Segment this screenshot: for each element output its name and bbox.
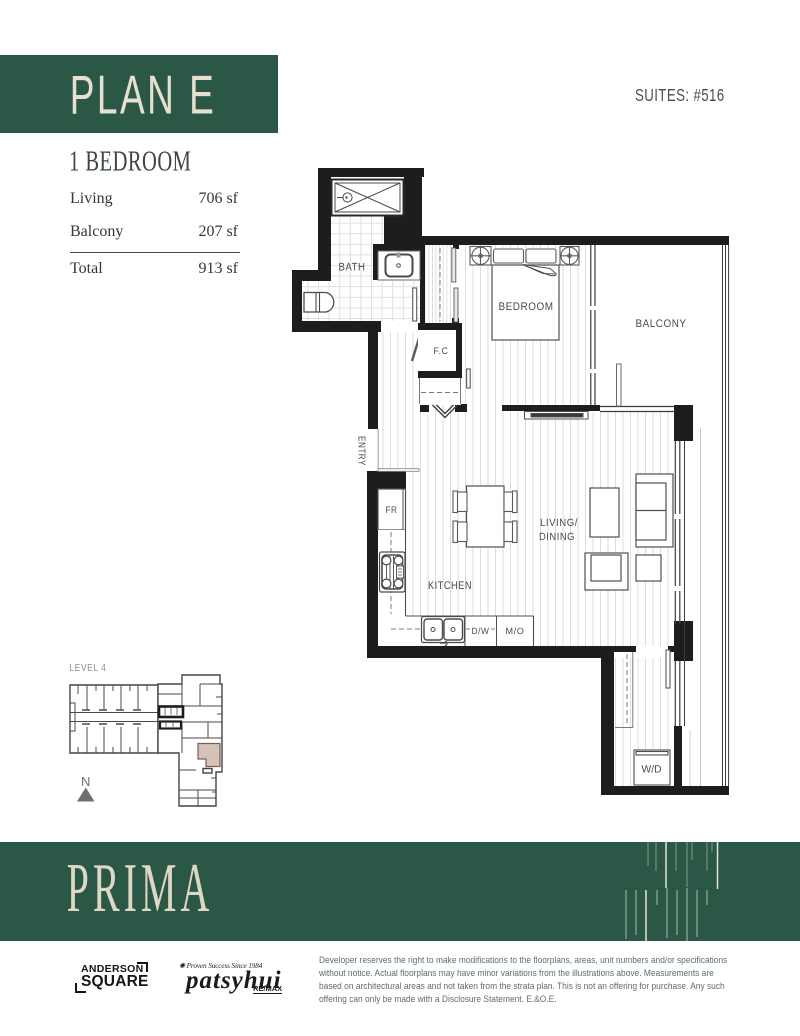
- svg-text:FR: FR: [386, 505, 398, 516]
- svg-text:ENTRY: ENTRY: [356, 436, 367, 466]
- svg-text:BALCONY: BALCONY: [636, 318, 687, 330]
- svg-text:N: N: [81, 774, 90, 789]
- svg-text:D/W: D/W: [472, 626, 490, 636]
- svg-text:LIVING/: LIVING/: [540, 517, 578, 529]
- svg-text:BEDROOM: BEDROOM: [499, 301, 554, 313]
- svg-text:KITCHEN: KITCHEN: [428, 580, 472, 592]
- svg-text:LEVEL 4: LEVEL 4: [70, 662, 107, 674]
- svg-text:F.C: F.C: [434, 346, 449, 357]
- svg-text:DINING: DINING: [539, 531, 575, 543]
- svg-text:W/D: W/D: [642, 764, 662, 776]
- svg-text:BATH: BATH: [339, 262, 366, 274]
- svg-text:M/O: M/O: [506, 626, 525, 636]
